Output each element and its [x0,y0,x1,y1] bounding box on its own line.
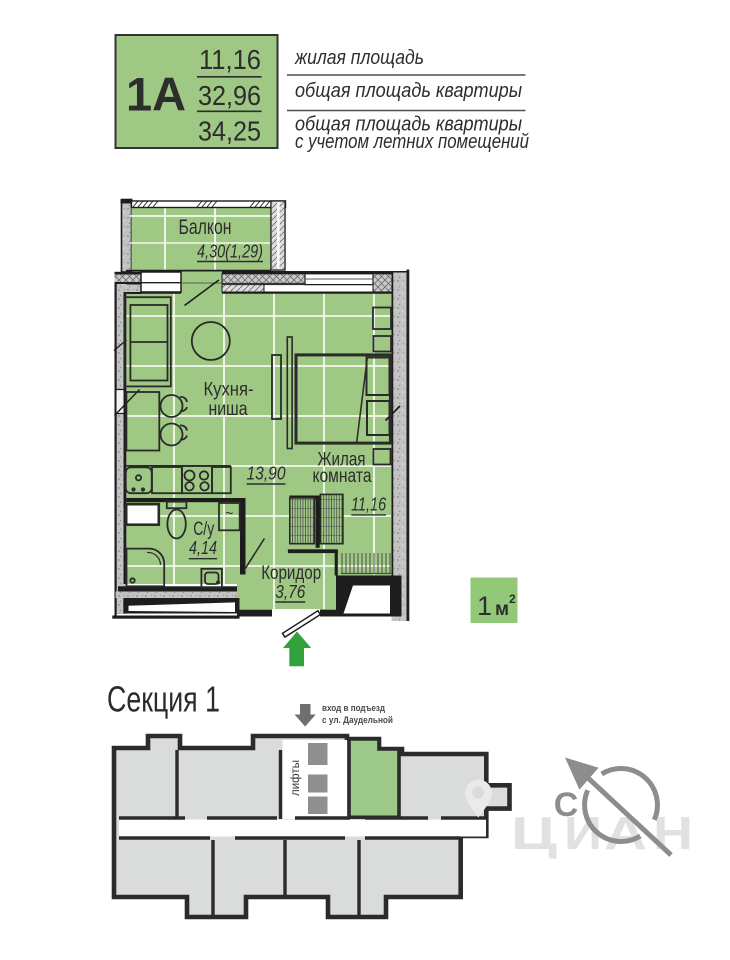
svg-text:34,25: 34,25 [198,116,261,147]
svg-text:~: ~ [225,505,233,521]
svg-text:3,76: 3,76 [275,581,306,602]
svg-text:с учетом летних помещений: с учетом летних помещений [295,131,529,153]
svg-text:жилая площадь: жилая площадь [294,47,424,69]
svg-text:1: 1 [477,591,492,621]
svg-text:13,90: 13,90 [247,463,287,484]
svg-text:Кухня-: Кухня- [204,380,254,401]
svg-text:с ул. Даудельной: с ул. Даудельной [322,715,393,726]
svg-text:С: С [554,786,579,824]
svg-text:32,96: 32,96 [198,80,261,111]
svg-text:2: 2 [509,592,516,606]
svg-text:комната: комната [313,466,372,487]
svg-text:м: м [495,599,509,620]
svg-text:Секция 1: Секция 1 [107,679,220,720]
svg-text:вход в подъезд: вход в подъезд [322,703,385,714]
svg-text:1А: 1А [126,68,186,121]
svg-text:11,16: 11,16 [199,44,261,75]
svg-text:общая площадь квартиры: общая площадь квартиры [295,80,522,102]
svg-text:4,30(1,29): 4,30(1,29) [197,241,263,262]
svg-text:4,14: 4,14 [189,537,217,558]
svg-text:лифты: лифты [290,760,302,796]
svg-text:11,16: 11,16 [351,494,387,515]
svg-text:ниша: ниша [209,399,248,420]
svg-text:Балкон: Балкон [179,216,232,239]
svg-text:Н: Н [653,807,693,859]
svg-text:Ц: Ц [511,807,558,859]
